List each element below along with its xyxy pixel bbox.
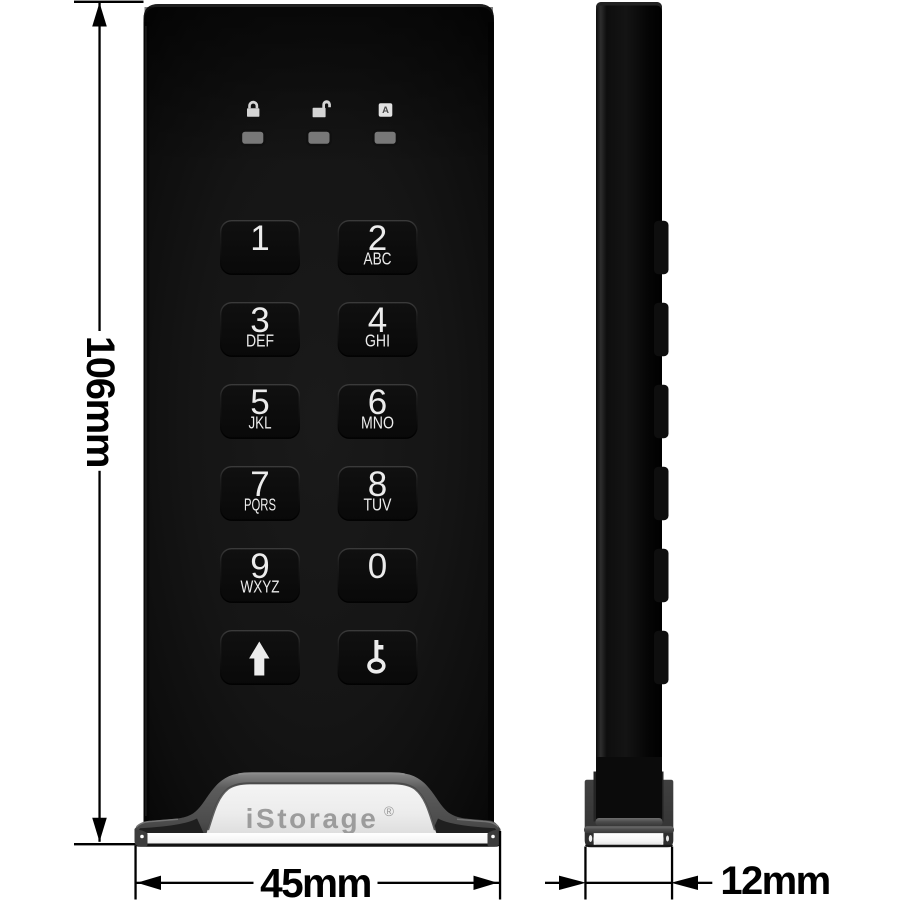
svg-text:WXYZ: WXYZ xyxy=(241,577,280,597)
svg-text:®: ® xyxy=(384,804,394,819)
svg-text:0: 0 xyxy=(368,547,387,586)
svg-text:GHI: GHI xyxy=(365,331,390,351)
svg-text:TUV: TUV xyxy=(364,495,392,515)
svg-text:12mm: 12mm xyxy=(720,859,829,900)
svg-text:A: A xyxy=(382,105,389,116)
svg-text:45mm: 45mm xyxy=(260,860,371,900)
svg-text:MNO: MNO xyxy=(361,413,394,433)
svg-text:iStorage: iStorage xyxy=(246,803,379,834)
svg-text:DEF: DEF xyxy=(246,331,274,351)
svg-text:PQRS: PQRS xyxy=(244,495,276,515)
svg-text:1: 1 xyxy=(250,219,269,258)
svg-text:JKL: JKL xyxy=(249,413,272,433)
svg-text:106mm: 106mm xyxy=(78,336,122,467)
svg-text:ABC: ABC xyxy=(364,249,392,269)
